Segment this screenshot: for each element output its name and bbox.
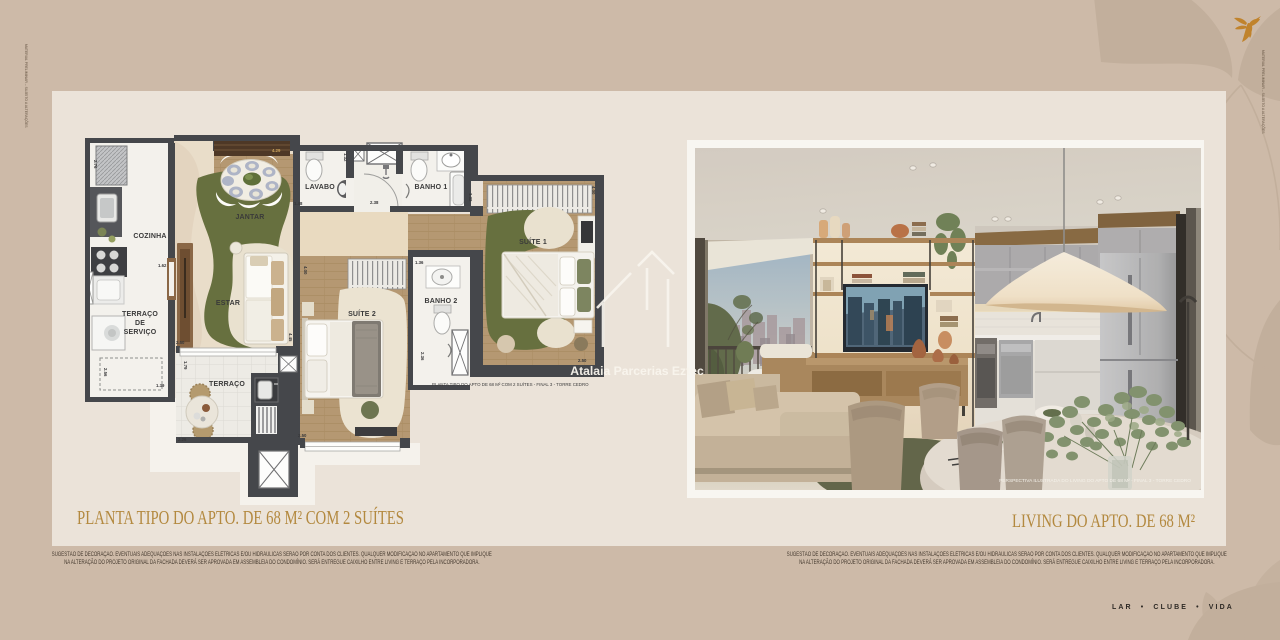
svg-text:2.50: 2.50	[176, 340, 185, 345]
svg-text:JANTAR: JANTAR	[235, 214, 264, 221]
svg-text:4.29: 4.29	[272, 148, 281, 153]
svg-text:4.00: 4.00	[303, 266, 308, 275]
svg-text:1.32: 1.32	[343, 153, 348, 162]
svg-text:1.36: 1.36	[415, 260, 424, 265]
svg-text:2.56: 2.56	[103, 368, 108, 377]
svg-text:COZINHA: COZINHA	[133, 233, 166, 240]
svg-text:TERRAÇO: TERRAÇO	[209, 381, 245, 388]
svg-text:SUÍTE 1: SUÍTE 1	[519, 237, 547, 246]
svg-text:2.36: 2.36	[420, 352, 425, 361]
svg-text:PERSPECTIVA ILUSTRADA DO LIVIN: PERSPECTIVA ILUSTRADA DO LIVING DO APTO …	[999, 478, 1191, 484]
svg-text:4.45: 4.45	[288, 333, 293, 342]
svg-text:ESTAR: ESTAR	[216, 300, 240, 307]
svg-text:4.00: 4.00	[591, 186, 596, 195]
svg-text:Atalaia Parcerias Eztec: Atalaia Parcerias Eztec	[570, 364, 704, 378]
svg-text:DE: DE	[135, 320, 145, 327]
svg-text:SERVIÇO: SERVIÇO	[124, 329, 157, 336]
svg-text:BANHO 1: BANHO 1	[415, 184, 448, 191]
svg-text:BANHO 2: BANHO 2	[425, 298, 458, 305]
svg-text:TERRAÇO: TERRAÇO	[122, 311, 158, 318]
svg-text:SUÍTE 2: SUÍTE 2	[348, 309, 376, 318]
svg-text:2.38: 2.38	[370, 200, 379, 205]
svg-text:LAVABO: LAVABO	[305, 184, 335, 191]
svg-text:1.79: 1.79	[183, 361, 188, 370]
svg-text:1.32: 1.32	[468, 193, 473, 202]
svg-text:1.62: 1.62	[158, 263, 167, 268]
svg-text:1.48: 1.48	[294, 201, 303, 206]
svg-text:2.50: 2.50	[298, 433, 307, 438]
svg-text:1.39: 1.39	[156, 383, 165, 388]
svg-text:2.76: 2.76	[93, 160, 98, 169]
svg-text:2.26: 2.26	[178, 437, 187, 442]
